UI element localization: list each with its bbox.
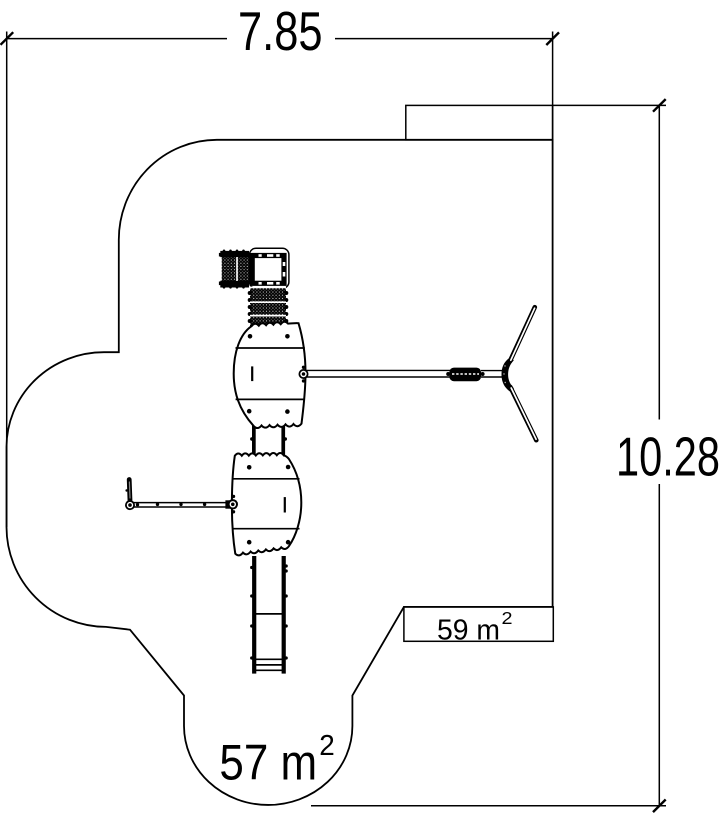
svg-text:2: 2 [319, 730, 335, 762]
svg-text:57 m: 57 m [219, 735, 317, 791]
svg-text:2: 2 [502, 608, 513, 628]
svg-text:7.85: 7.85 [238, 0, 323, 62]
svg-text:59 m: 59 m [437, 614, 500, 646]
svg-text:10.28: 10.28 [616, 426, 720, 488]
